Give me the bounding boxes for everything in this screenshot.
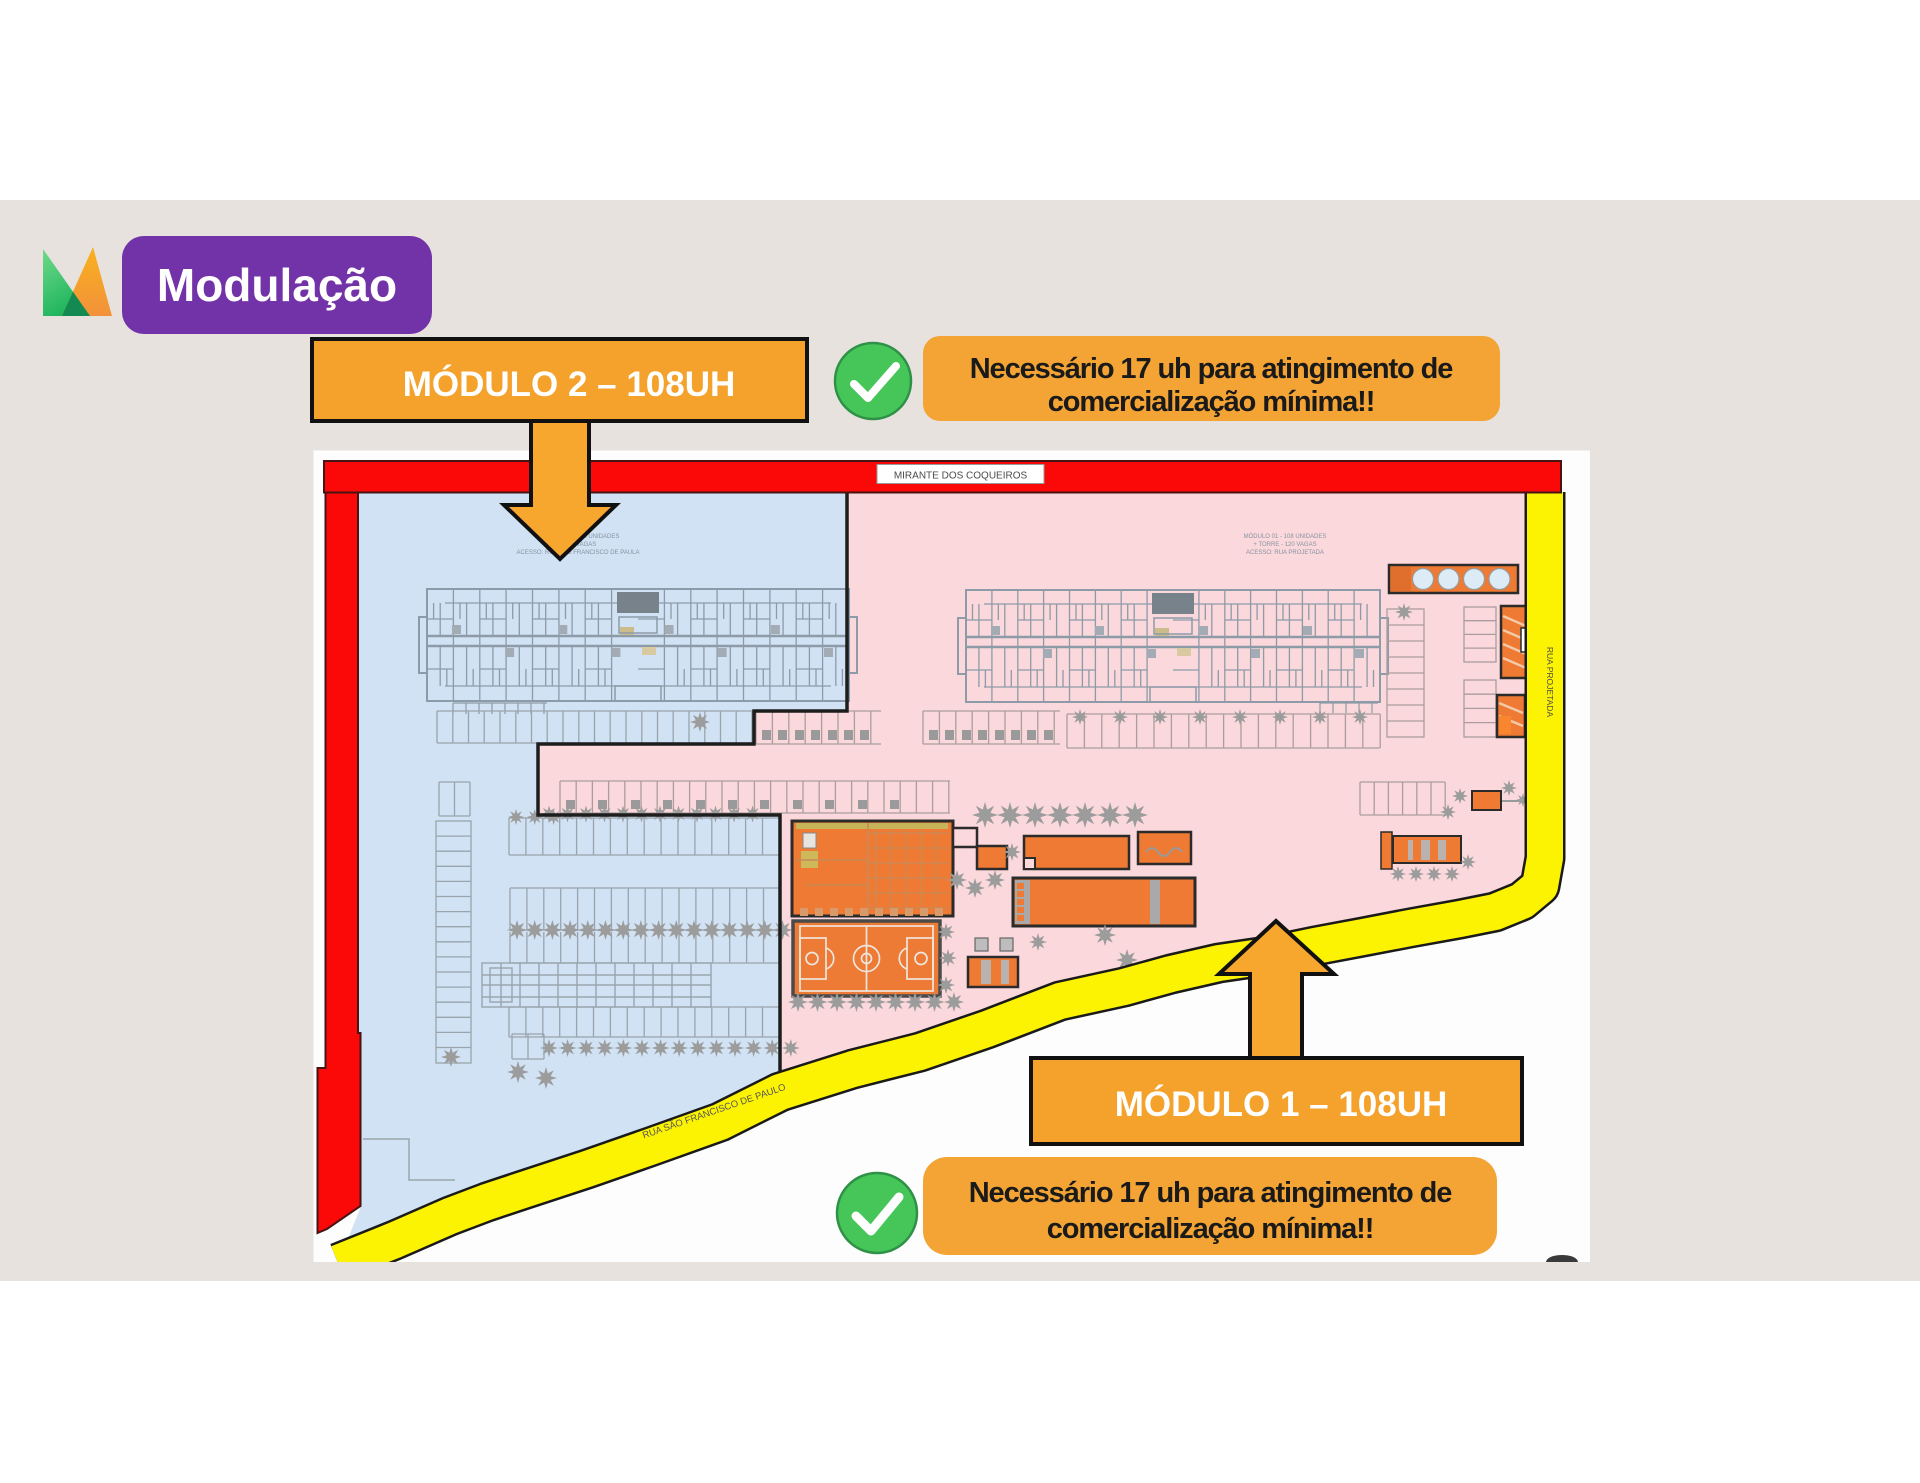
svg-text:comercialização mínima!!: comercialização mínima!! [1047,1213,1374,1245]
svg-text:MÓDULO 1 – 108UH: MÓDULO 1 – 108UH [1115,1084,1448,1124]
svg-text:ACESSO: RUA SÃO FRANCISCO DE P: ACESSO: RUA SÃO FRANCISCO DE PAULA [517,549,640,556]
svg-text:Modulação: Modulação [157,259,397,311]
svg-text:RUA PROJETADA: RUA PROJETADA [1545,647,1555,718]
svg-text:Necessário 17 uh para atingime: Necessário 17 uh para atingimento de [969,1177,1453,1209]
svg-text:comercialização mínima!!: comercialização mínima!! [1048,386,1375,418]
svg-text:MÓDULO 01 - 108 UNIDADES: MÓDULO 01 - 108 UNIDADES [1244,533,1327,540]
svg-text:+ TORRE - 120 VAGAS: + TORRE - 120 VAGAS [1253,542,1316,548]
svg-text:MÓDULO 2 – 108UH: MÓDULO 2 – 108UH [403,364,736,404]
svg-text:Necessário 17 uh para atingime: Necessário 17 uh para atingimento de [970,353,1454,385]
svg-text:ACESSO: RUA PROJETADA: ACESSO: RUA PROJETADA [1246,550,1324,556]
svg-text:MIRANTE DOS COQUEIROS: MIRANTE DOS COQUEIROS [894,471,1028,482]
